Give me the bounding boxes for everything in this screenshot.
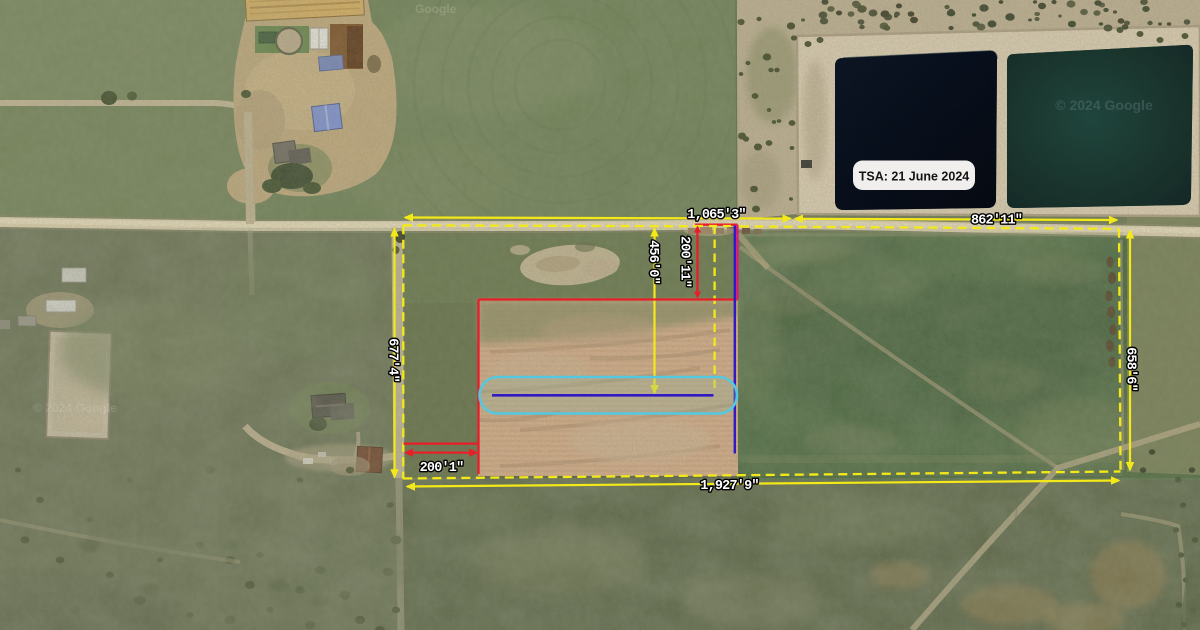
svg-text:© 2024 Google: © 2024 Google [1055,97,1153,113]
svg-text:200'11": 200'11" [677,236,692,287]
svg-text:1,065'3": 1,065'3" [687,208,745,223]
svg-text:200'1": 200'1" [420,461,464,476]
svg-text:677'4": 677'4" [385,338,400,382]
svg-text:456'0": 456'0" [645,240,660,284]
svg-text:TSA: 21 June 2024: TSA: 21 June 2024 [859,170,970,184]
svg-text:Google: Google [415,2,457,16]
svg-text:862'11": 862'11" [971,214,1022,229]
svg-text:1,927'9": 1,927'9" [700,479,758,494]
svg-text:658'6": 658'6" [1123,347,1138,391]
